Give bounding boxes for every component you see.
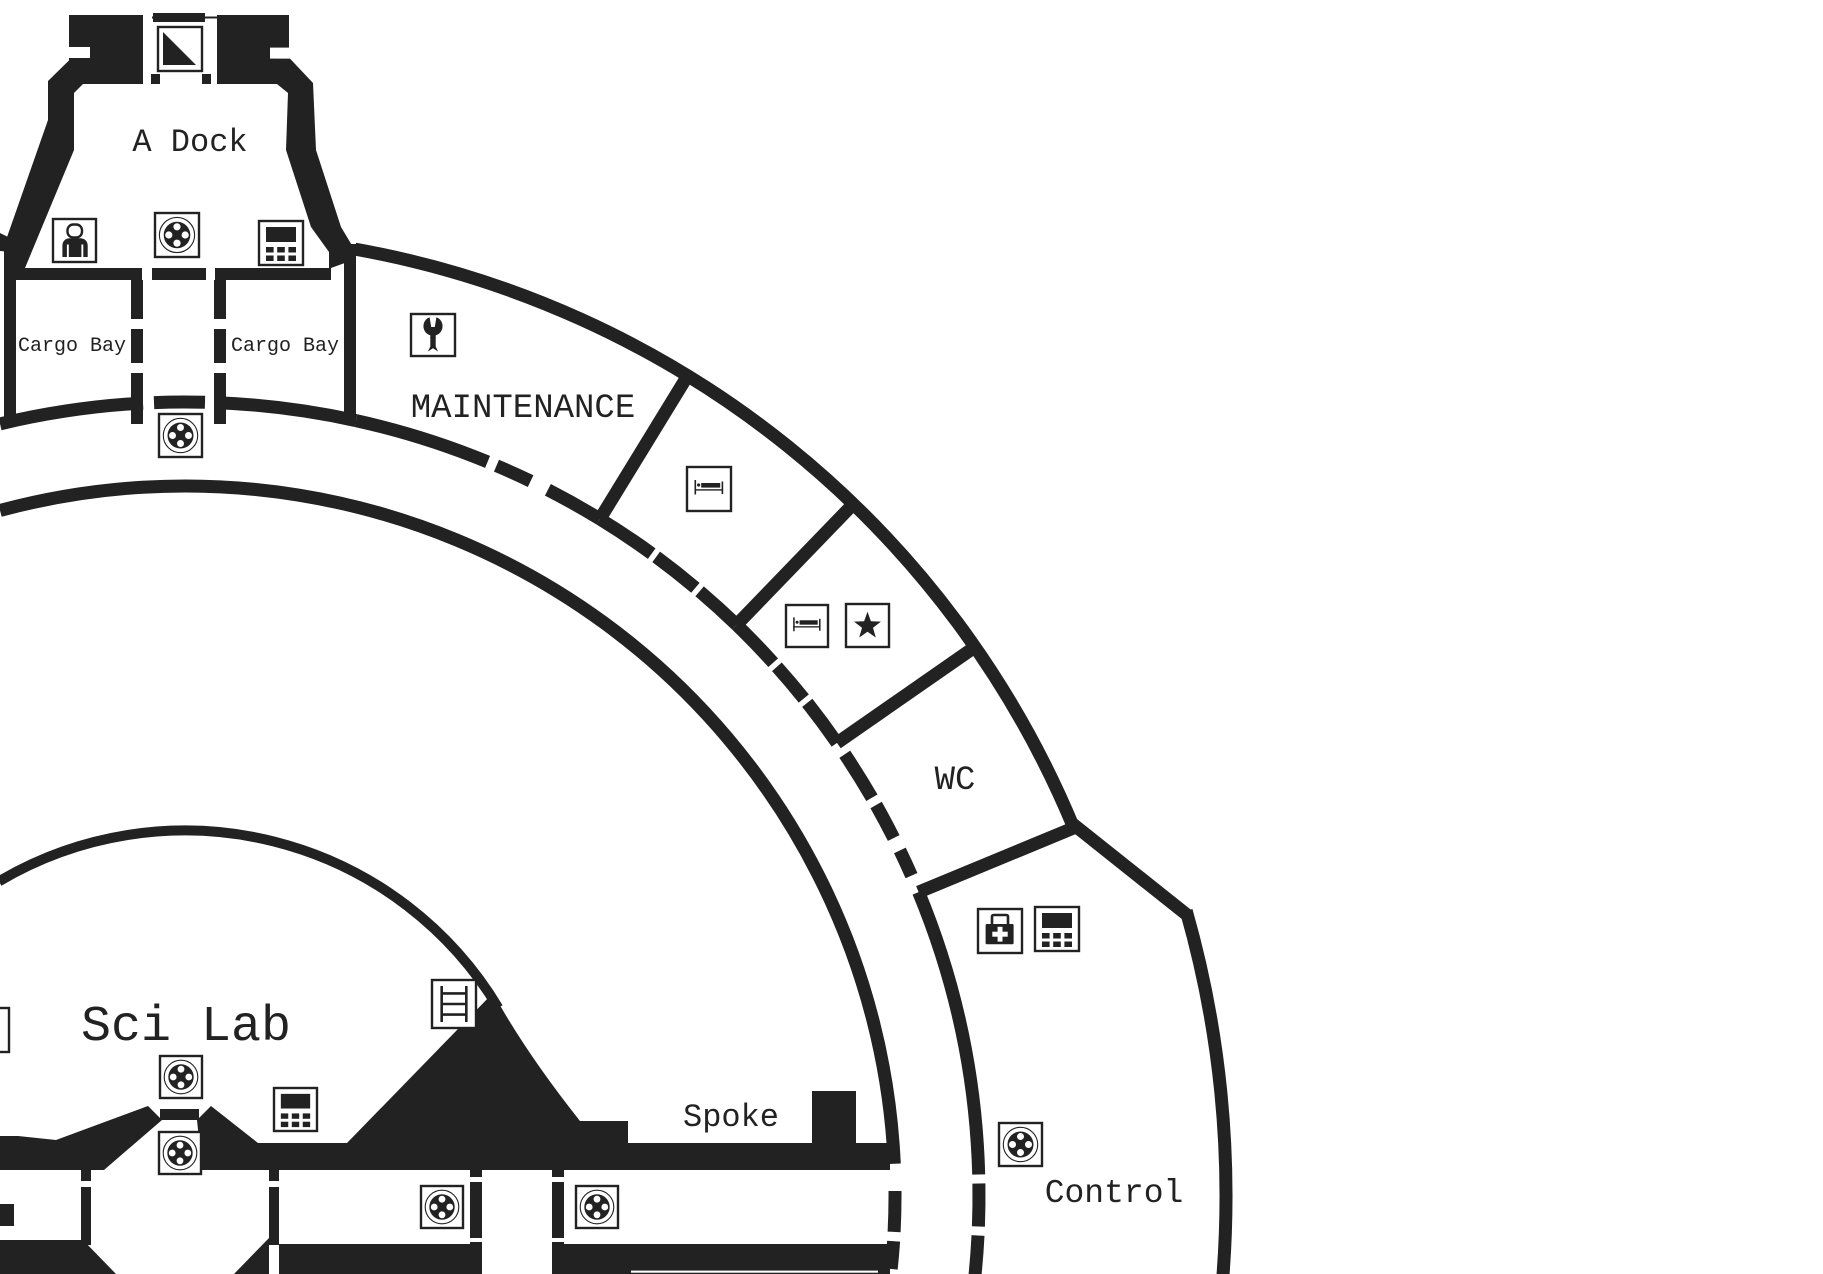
svg-text:MAINTENANCE: MAINTENANCE: [411, 390, 635, 428]
svg-text:Control: Control: [1045, 1175, 1184, 1212]
svg-text:Sci Lab: Sci Lab: [81, 999, 291, 1056]
svg-text:Cargo Bay: Cargo Bay: [18, 335, 126, 358]
svg-text:Cargo Bay: Cargo Bay: [231, 335, 339, 358]
svg-text:Spoke: Spoke: [683, 1099, 779, 1136]
svg-text:WC: WC: [935, 762, 976, 800]
svg-text:A Dock: A Dock: [132, 124, 247, 161]
